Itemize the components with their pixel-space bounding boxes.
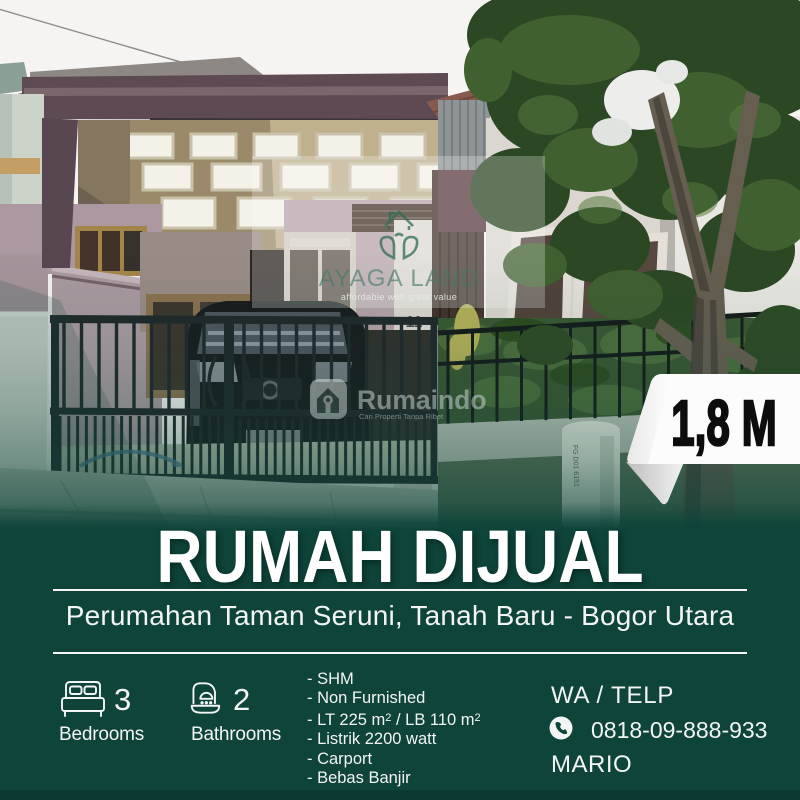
svg-text:1,8 M: 1,8 M	[671, 388, 777, 459]
